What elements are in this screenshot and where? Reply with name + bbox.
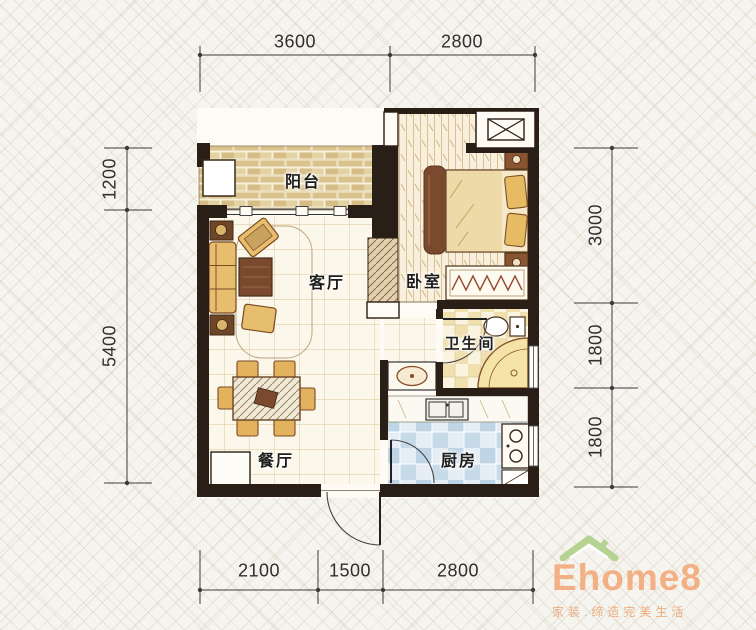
toilet-flush-icon <box>516 325 519 328</box>
pillow <box>504 175 527 209</box>
logo-text: Ehome8 <box>552 559 742 596</box>
brand-logo: Ehome8 家装.缔造完美生活 <box>552 533 742 620</box>
dim-right-3: 1800 <box>586 416 607 458</box>
basin-drain-icon <box>410 374 414 378</box>
room-label-kitchen: 厨房 <box>441 447 477 471</box>
wall-bottom-right <box>380 484 539 497</box>
wall-column <box>372 206 398 238</box>
dim-bottom-2: 1500 <box>329 561 371 582</box>
dining-chair <box>237 419 258 436</box>
entry-cabinet <box>211 452 250 486</box>
dim-left-1: 1200 <box>100 158 121 200</box>
stove-knob-icon <box>507 445 510 448</box>
bedside-rug <box>424 166 446 254</box>
dining-chair <box>299 388 315 410</box>
faucet-icon <box>446 404 449 407</box>
lamp-icon <box>216 225 227 236</box>
sofa <box>209 242 236 313</box>
dim-bottom-1: 2100 <box>238 561 280 582</box>
bed-blanket <box>446 170 502 252</box>
feature-wall-hatch <box>368 238 398 304</box>
hallway-floor <box>384 318 436 364</box>
dim-bottom-3: 2800 <box>437 561 479 582</box>
dim-top-1: 3600 <box>274 32 316 53</box>
entry-door-swing <box>327 492 380 545</box>
wall-left <box>197 216 209 486</box>
lamp-icon <box>217 320 228 331</box>
wall-balcony-bedroom <box>372 145 398 211</box>
dining-chair <box>274 419 295 436</box>
ac-platform <box>476 111 535 148</box>
room-label-balcony: 阳台 <box>285 168 321 192</box>
nightstand-lamp-icon <box>513 259 521 267</box>
room-label-living: 客厅 <box>309 269 345 293</box>
dining-chair <box>274 361 295 378</box>
dim-top-2: 2800 <box>441 32 483 53</box>
wall-cap <box>384 112 398 146</box>
wall-bathroom-left <box>436 309 443 319</box>
wall-bathroom-bottom <box>436 388 539 396</box>
armchair <box>241 304 276 333</box>
wall-kitchen-left <box>380 360 388 440</box>
washbasin-counter <box>388 362 436 390</box>
room-label-bathroom: 卫生间 <box>444 333 495 354</box>
dim-left-2: 5400 <box>100 325 121 367</box>
nightstand-lamp-icon <box>513 156 521 164</box>
floor-plan-page: 阳台 客厅 卧室 卫生间 餐厅 厨房 3600 2800 1200 5400 3… <box>0 0 756 630</box>
dim-right-2: 1800 <box>586 324 607 366</box>
wall-cap <box>367 302 399 318</box>
dim-right-1: 3000 <box>586 204 607 246</box>
dining-chair <box>218 387 234 409</box>
room-label-dining: 餐厅 <box>258 447 294 471</box>
balcony-planter <box>203 160 235 196</box>
wardrobe <box>446 266 528 300</box>
room-label-bedroom: 卧室 <box>406 268 442 292</box>
wall-bottom-left <box>197 484 321 497</box>
dining-chair <box>237 361 258 378</box>
wall-bedroom-bathroom <box>437 300 539 309</box>
logo-tagline: 家装.缔造完美生活 <box>552 603 742 620</box>
pillow <box>504 213 527 247</box>
